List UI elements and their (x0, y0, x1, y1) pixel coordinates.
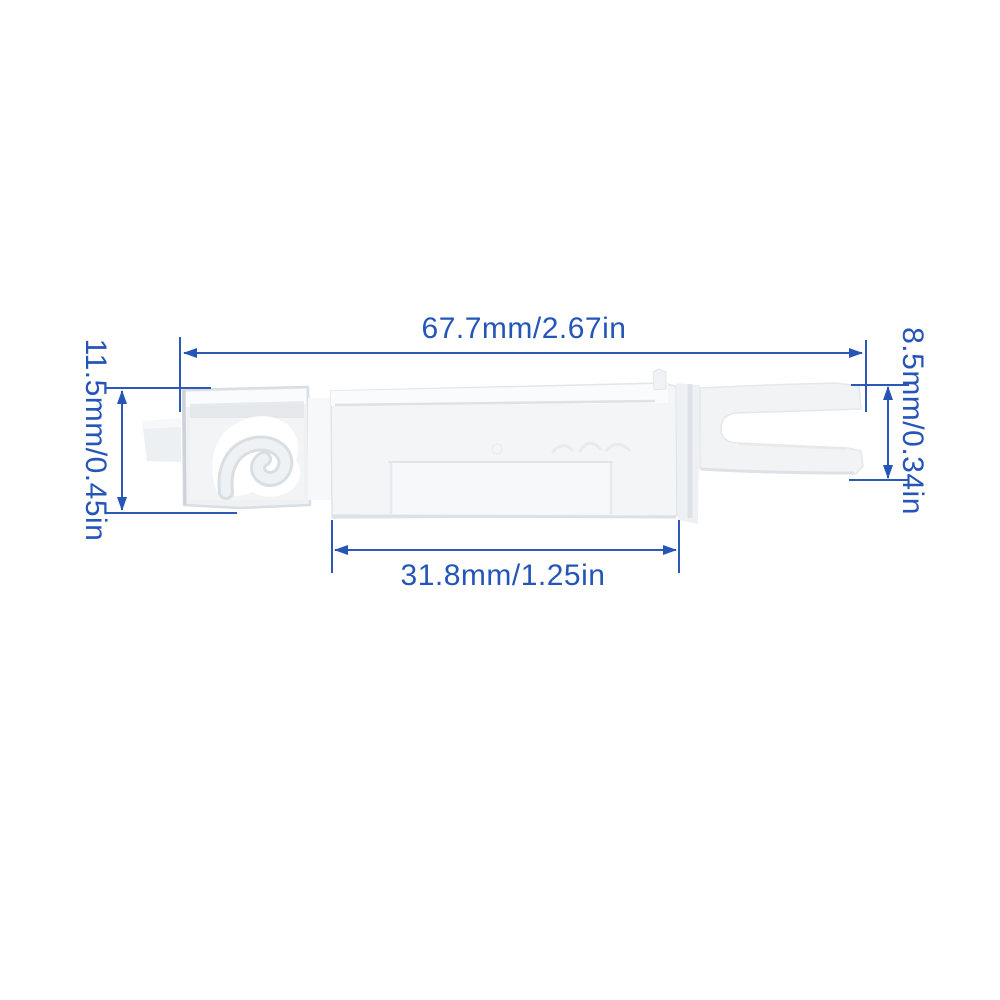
dim-left-arrowhead-bottom (117, 497, 127, 511)
dim-top-arrowhead-left (183, 348, 197, 358)
main-body (331, 369, 677, 518)
dim-right-arrowhead-bottom (883, 465, 893, 479)
dim-left-arrowhead-top (117, 390, 127, 404)
hinge-connector-shape (308, 398, 334, 500)
top-prong-shape (653, 369, 666, 390)
fork-shape (700, 383, 863, 474)
dim-top-label: 67.7mm/2.67in (422, 314, 627, 344)
dim-right-arrowhead-top (883, 386, 893, 400)
dim-bottom-label: 31.8mm/1.25in (401, 561, 606, 591)
dim-top-arrowhead-right (849, 348, 863, 358)
clip-block-left-edge (184, 390, 185, 505)
recessed-panel-shape (390, 462, 612, 514)
dim-right-label: 8.5mm/0.34in (897, 327, 927, 515)
main-body-bottom-edge (333, 516, 676, 517)
product-dimension-diagram: 67.7mm/2.67in 11.5mm/0.45in 8.5mm/0.34in… (0, 0, 1000, 1000)
clip-block (183, 387, 310, 508)
dim-bottom-arrowhead-left (334, 545, 348, 555)
product-photo (142, 369, 863, 524)
fork-connector (676, 383, 700, 524)
diagram-svg (0, 0, 1000, 1000)
dim-left-label: 11.5mm/0.45in (80, 339, 110, 542)
dim-bottom-arrowhead-right (663, 545, 677, 555)
left-tab (142, 418, 181, 462)
fork (700, 383, 863, 474)
